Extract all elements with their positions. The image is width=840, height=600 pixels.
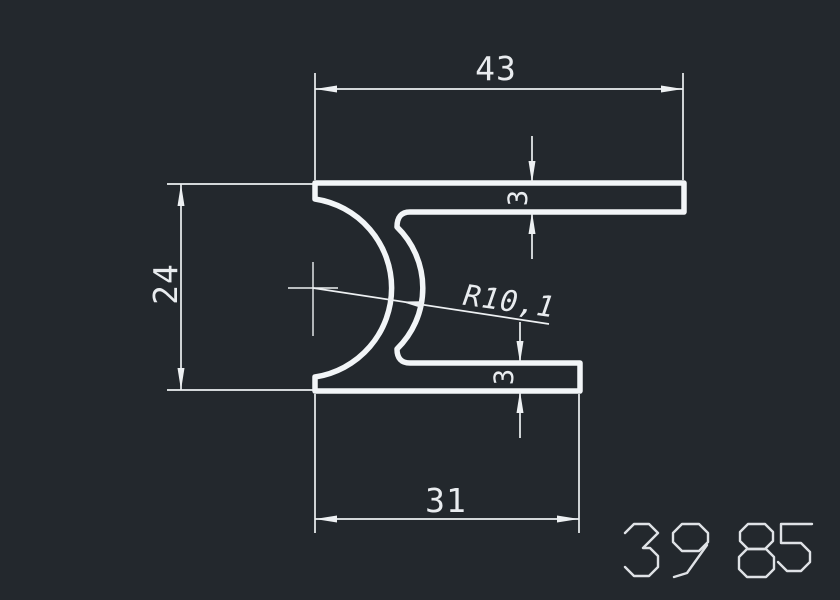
digit-3 <box>625 524 658 576</box>
dim-top-width: 43 <box>315 49 683 180</box>
dim-top-thickness-arrow-up <box>529 212 536 234</box>
dim-top-width-label: 43 <box>475 49 517 88</box>
dim-bottom-width: 31 <box>315 394 579 533</box>
radius-label: R10,1 <box>461 278 557 325</box>
digit-8-top-loop <box>740 524 773 549</box>
dim-left-height: 24 <box>146 184 313 390</box>
dim-bottom-thickness-label: 3 <box>489 369 520 385</box>
dim-top-thickness: 3 <box>503 136 536 259</box>
radius-arrow <box>401 301 423 308</box>
dim-left-height-arrow-top <box>178 184 185 206</box>
dim-left-height-label: 24 <box>146 263 185 305</box>
dim-top-thickness-label: 3 <box>503 190 534 206</box>
dim-bottom-width-label: 31 <box>425 481 467 520</box>
dim-bottom-width-arrow-left <box>315 516 337 523</box>
dim-left-height-arrow-bottom <box>178 368 185 390</box>
dim-bottom-thickness: 3 <box>489 322 524 438</box>
digit-8-bottom-loop <box>739 549 774 577</box>
dim-bottom-thickness-arrow-up <box>517 391 524 413</box>
dim-top-width-arrow-left <box>315 86 337 93</box>
dim-top-width-arrow-right <box>661 86 683 93</box>
profile-drawing: 43 24 31 3 <box>0 0 840 600</box>
dim-top-thickness-arrow-down <box>529 161 536 183</box>
drawing-number-graphic <box>625 524 812 577</box>
digit-5 <box>778 524 812 571</box>
cad-drawing-canvas: 43 24 31 3 <box>0 0 840 600</box>
dim-bottom-thickness-arrow-down <box>517 341 524 363</box>
dim-bottom-width-arrow-right <box>557 516 579 523</box>
digit-9-loop <box>673 524 708 551</box>
